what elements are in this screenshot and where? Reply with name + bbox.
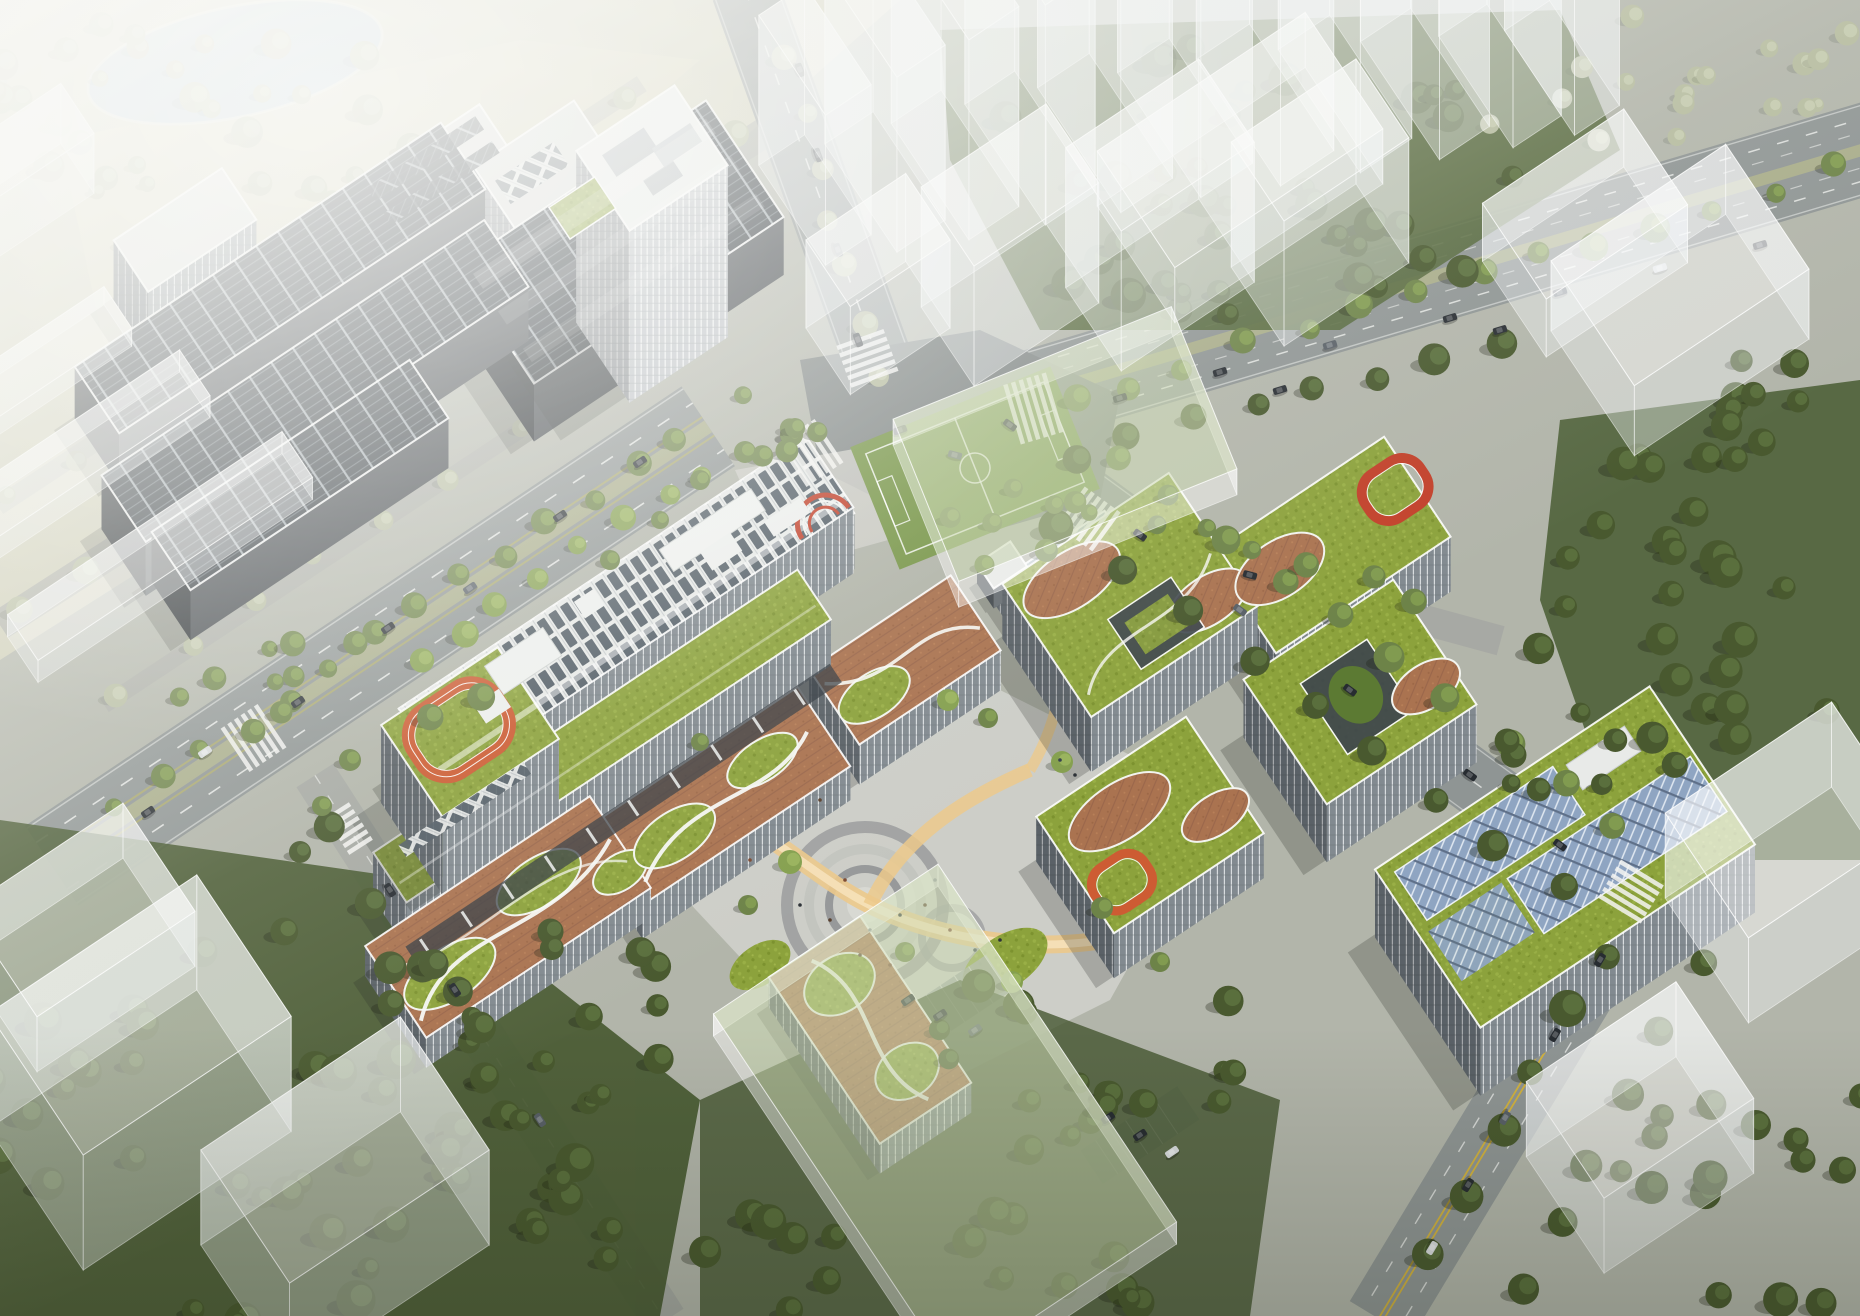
render-canvas	[0, 0, 1860, 1316]
bottom-vignette	[0, 0, 1860, 1316]
aerial-render	[0, 0, 1860, 1316]
